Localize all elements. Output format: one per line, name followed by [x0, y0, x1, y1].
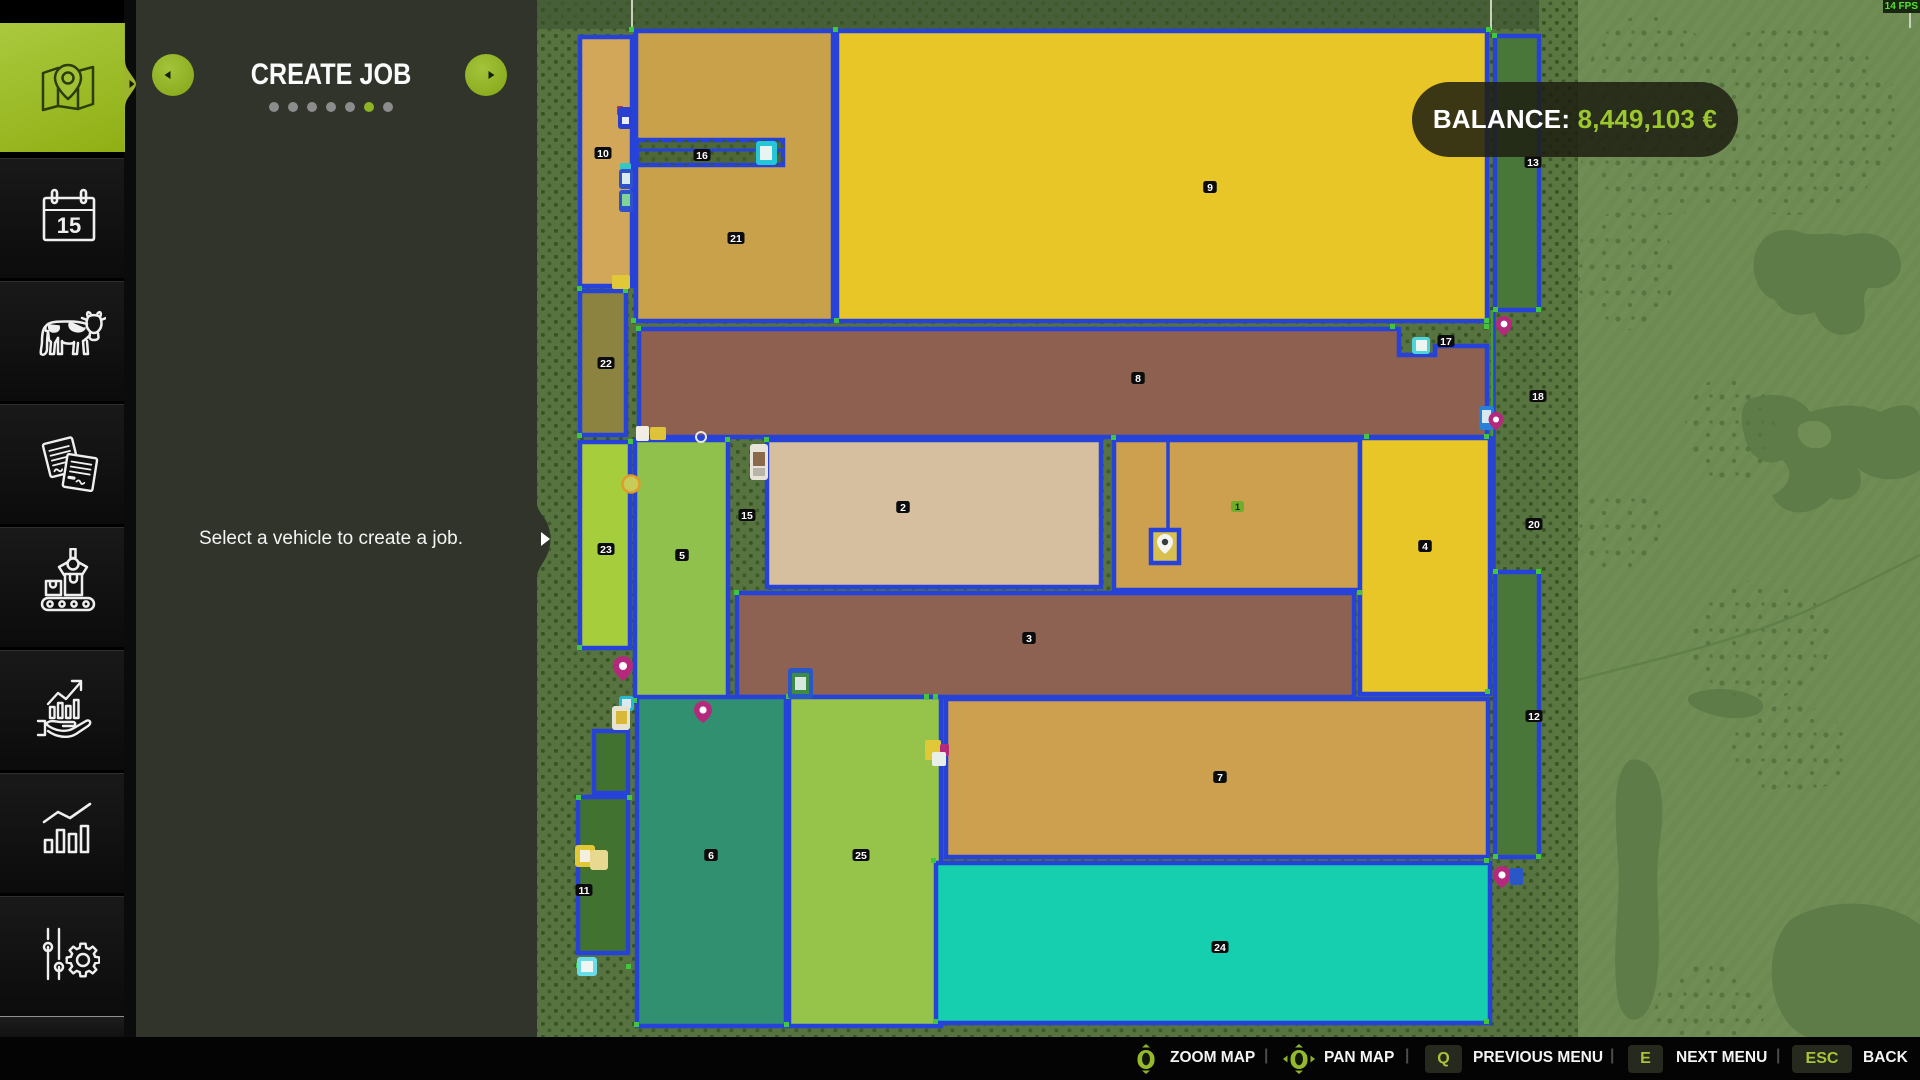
svg-text:15: 15	[57, 213, 81, 238]
svg-text:20: 20	[1528, 519, 1540, 531]
svg-text:15: 15	[741, 510, 753, 522]
svg-text:22: 22	[600, 358, 612, 370]
svg-text:10: 10	[597, 148, 609, 160]
svg-text:16: 16	[696, 150, 708, 162]
svg-text:23: 23	[600, 544, 612, 556]
svg-text:3: 3	[1026, 633, 1032, 645]
svg-text:1: 1	[1235, 502, 1241, 513]
svg-text:25: 25	[855, 850, 867, 862]
svg-text:7: 7	[1217, 772, 1223, 784]
svg-text:13: 13	[1527, 157, 1539, 169]
svg-text:18: 18	[1532, 391, 1544, 403]
svg-text:4: 4	[1422, 541, 1428, 553]
svg-text:17: 17	[1440, 336, 1452, 348]
svg-text:21: 21	[730, 233, 742, 245]
svg-text:8: 8	[1135, 373, 1141, 385]
svg-text:5: 5	[679, 550, 685, 562]
svg-text:9: 9	[1207, 182, 1213, 194]
svg-text:2: 2	[900, 502, 906, 514]
svg-text:24: 24	[1214, 942, 1226, 954]
svg-text:11: 11	[578, 885, 589, 897]
svg-text:12: 12	[1528, 711, 1540, 723]
svg-text:6: 6	[708, 850, 714, 862]
